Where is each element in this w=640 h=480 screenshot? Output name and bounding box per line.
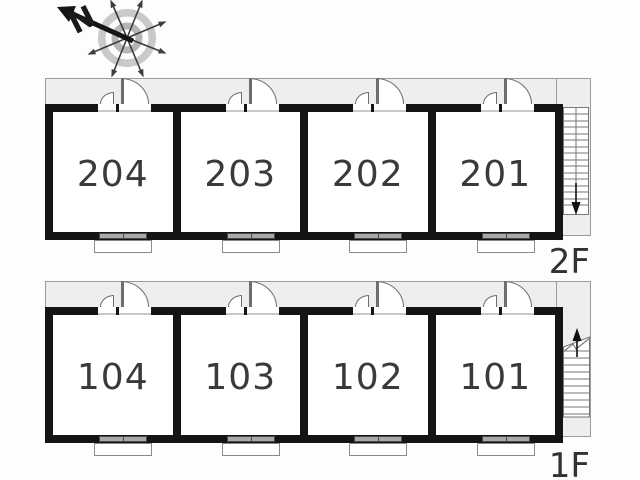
window-icon bbox=[99, 436, 147, 442]
window-sill bbox=[222, 240, 280, 253]
door-opening bbox=[247, 307, 279, 315]
room-number: 102 bbox=[332, 353, 404, 398]
door-opening bbox=[98, 104, 116, 112]
stairs-icon bbox=[563, 325, 591, 422]
room: 201 bbox=[436, 112, 556, 232]
room-number: 101 bbox=[459, 353, 531, 398]
window-sill bbox=[349, 443, 407, 456]
window-icon bbox=[227, 436, 275, 442]
window-sill bbox=[94, 240, 152, 253]
compass-rose-icon: N bbox=[33, 0, 191, 84]
floor-section-1f: 104 103 102 bbox=[0, 281, 640, 480]
door-opening bbox=[98, 307, 116, 315]
north-label: N bbox=[63, 0, 101, 42]
stairs-icon bbox=[563, 107, 589, 219]
window-icon bbox=[99, 233, 147, 239]
window-icon bbox=[482, 436, 530, 442]
window-sill bbox=[94, 443, 152, 456]
door-opening bbox=[353, 104, 371, 112]
room-number: 104 bbox=[77, 353, 149, 398]
door-opening bbox=[502, 307, 534, 315]
room: 103 bbox=[181, 315, 309, 435]
window-sill bbox=[222, 443, 280, 456]
floor-label: 1F bbox=[500, 446, 590, 480]
room: 202 bbox=[308, 112, 436, 232]
door-opening bbox=[119, 307, 151, 315]
door-opening bbox=[481, 104, 499, 112]
floor-section-2f: 204 203 202 bbox=[0, 78, 640, 278]
window-icon bbox=[354, 233, 402, 239]
room-number: 202 bbox=[332, 150, 404, 195]
window-icon bbox=[482, 233, 530, 239]
door-opening bbox=[374, 307, 406, 315]
rooms-row: 104 103 102 bbox=[45, 307, 563, 443]
rooms-row: 204 203 202 bbox=[45, 104, 563, 240]
floor-plan: N 204 203 bbox=[0, 0, 640, 480]
room-number: 201 bbox=[459, 150, 531, 195]
room: 102 bbox=[308, 315, 436, 435]
door-opening bbox=[502, 104, 534, 112]
door-opening bbox=[374, 104, 406, 112]
room-number: 203 bbox=[204, 150, 276, 195]
room: 101 bbox=[436, 315, 556, 435]
door-opening bbox=[226, 104, 244, 112]
window-icon bbox=[354, 436, 402, 442]
room: 104 bbox=[53, 315, 181, 435]
door-opening bbox=[226, 307, 244, 315]
floor-label: 2F bbox=[500, 242, 590, 282]
door-opening bbox=[481, 307, 499, 315]
door-opening bbox=[247, 104, 279, 112]
window-icon bbox=[227, 233, 275, 239]
room: 203 bbox=[181, 112, 309, 232]
door-opening bbox=[119, 104, 151, 112]
room-number: 204 bbox=[77, 150, 149, 195]
room: 204 bbox=[53, 112, 181, 232]
room-number: 103 bbox=[204, 353, 276, 398]
window-sill bbox=[349, 240, 407, 253]
door-opening bbox=[353, 307, 371, 315]
